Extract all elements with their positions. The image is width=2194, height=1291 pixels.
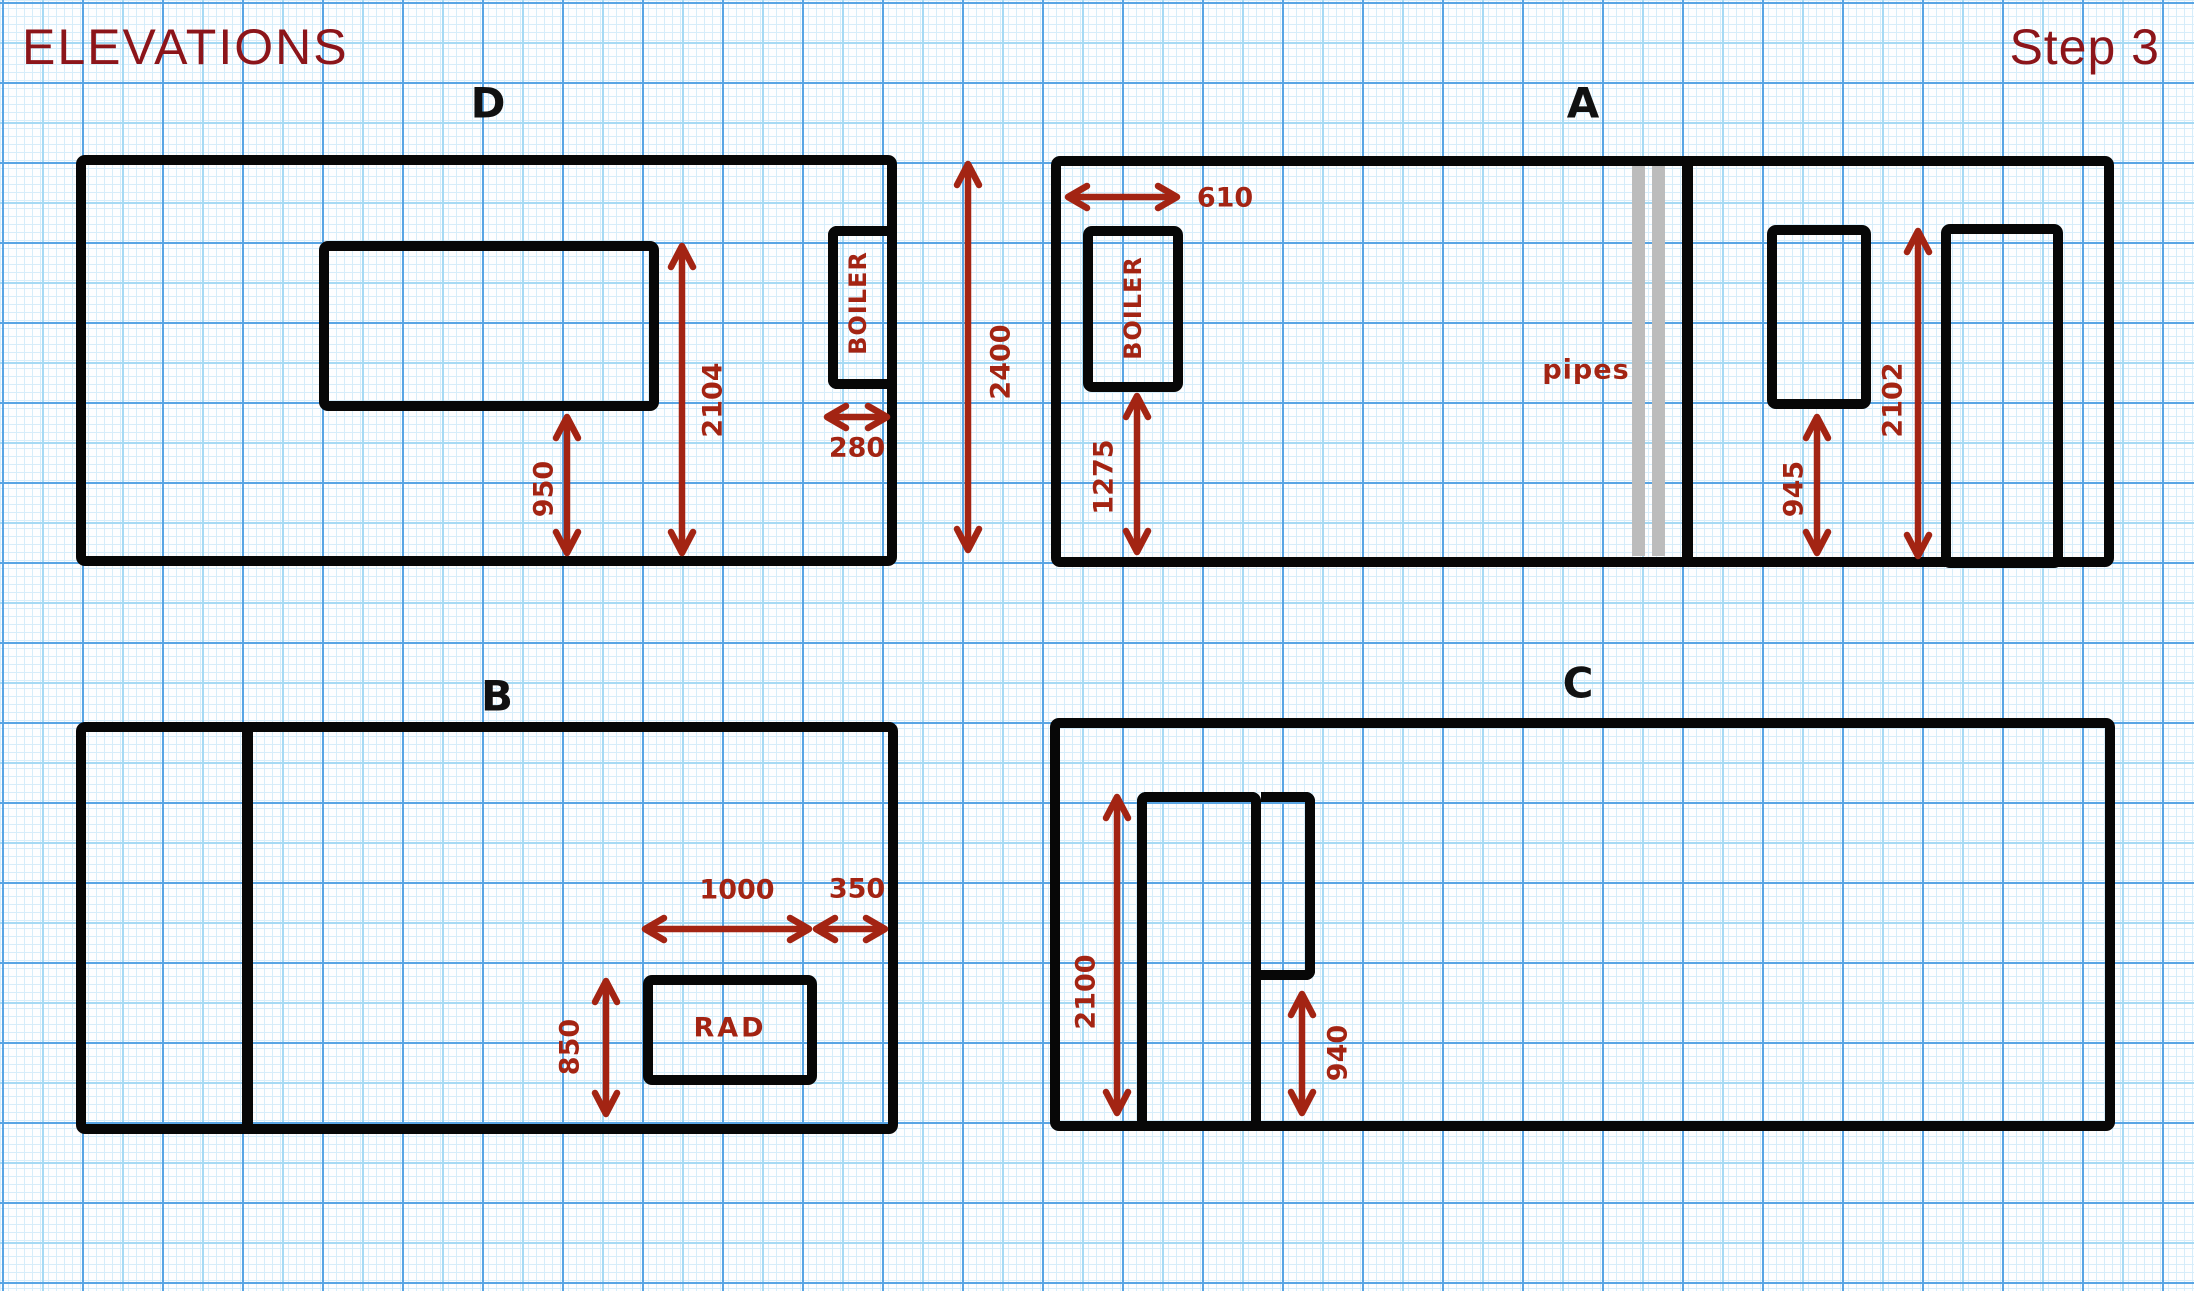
dim-arrow-2400 bbox=[957, 164, 979, 550]
radiator-label: RAD bbox=[693, 1013, 766, 1044]
dim-label-350: 350 bbox=[829, 874, 885, 905]
dim-label-1000: 1000 bbox=[699, 875, 774, 906]
dim-label-280: 280 bbox=[829, 433, 885, 464]
elevation-d-boiler-label: BOILER bbox=[844, 251, 872, 355]
elevation-a-divider-wall bbox=[1682, 156, 1693, 562]
step-label: Step 3 bbox=[2009, 18, 2160, 76]
dim-label-1275: 1275 bbox=[1089, 439, 1120, 514]
page-title: ELEVATIONS bbox=[22, 18, 349, 76]
elevation-d-label: D bbox=[471, 79, 506, 128]
elevation-c-door-leaf bbox=[1137, 792, 1261, 1126]
dim-label-2102: 2102 bbox=[1878, 362, 1909, 437]
dim-label-950: 950 bbox=[529, 461, 560, 517]
dim-label-2100: 2100 bbox=[1071, 954, 1102, 1029]
elevation-b-label: B bbox=[481, 672, 513, 721]
elevation-a-door bbox=[1941, 224, 2063, 568]
elevation-a-label: A bbox=[1567, 79, 1600, 128]
dim-label-2400: 2400 bbox=[986, 324, 1017, 399]
elevation-d-window bbox=[319, 241, 659, 411]
dim-label-2104: 2104 bbox=[698, 362, 729, 437]
dim-label-940: 940 bbox=[1323, 1025, 1354, 1081]
elevation-a-boiler-label: BOILER bbox=[1119, 256, 1147, 360]
elevation-b-divider-wall bbox=[242, 722, 253, 1134]
dim-label-850: 850 bbox=[555, 1019, 586, 1075]
pipe-right bbox=[1652, 166, 1665, 556]
dim-label-610: 610 bbox=[1197, 183, 1253, 214]
elevation-c-door-panel bbox=[1261, 792, 1315, 980]
pipes-label: pipes bbox=[1542, 355, 1629, 386]
dim-label-945: 945 bbox=[1779, 461, 1810, 517]
elevation-a-window bbox=[1767, 225, 1871, 409]
elevation-c-label: C bbox=[1563, 659, 1594, 708]
graph-paper: ELEVATIONS Step 3 D A B C BOILER 950 210… bbox=[0, 0, 2194, 1291]
pipe-left bbox=[1632, 166, 1645, 556]
